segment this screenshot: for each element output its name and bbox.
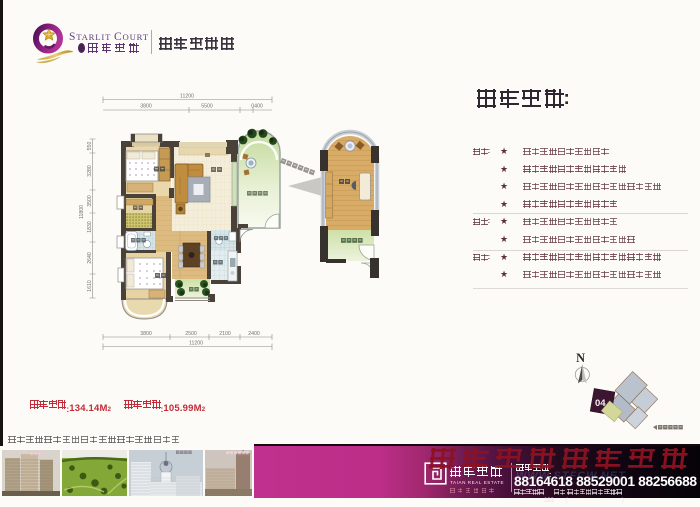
svg-text:2400: 2400 xyxy=(248,331,260,337)
svg-text:11200: 11200 xyxy=(180,94,194,100)
svg-text:5500: 5500 xyxy=(201,104,213,110)
svg-text:550: 550 xyxy=(87,142,93,151)
svg-text:11800: 11800 xyxy=(79,205,85,219)
svg-text:2640: 2640 xyxy=(87,252,93,264)
svg-text:3800: 3800 xyxy=(140,331,152,337)
svg-text:2100: 2100 xyxy=(219,331,231,337)
svg-text:11200: 11200 xyxy=(189,341,203,347)
svg-text:2500: 2500 xyxy=(185,331,197,337)
svg-text:3280: 3280 xyxy=(87,165,93,177)
svg-text:1830: 1830 xyxy=(87,221,93,233)
svg-text:3800: 3800 xyxy=(140,104,152,110)
svg-text:04: 04 xyxy=(595,398,606,409)
svg-text:0400: 0400 xyxy=(251,104,263,110)
svg-text:1610: 1610 xyxy=(87,280,93,292)
svg-text:3500: 3500 xyxy=(87,195,93,207)
